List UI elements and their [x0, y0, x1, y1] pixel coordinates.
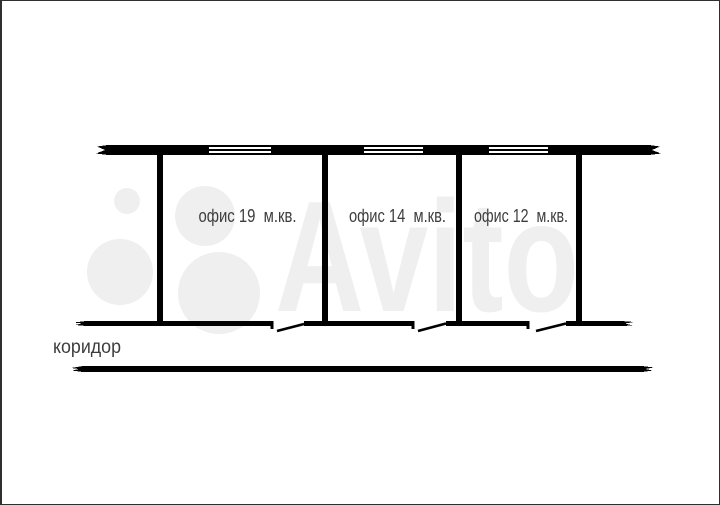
bottom-wall-segment-3: [446, 321, 529, 326]
windows: [209, 145, 548, 155]
wall-break-mark-corridor-left: [71, 366, 83, 372]
bottom-wall-segment-1: [86, 321, 273, 326]
watermark-text: Avito: [275, 169, 579, 345]
partition-wall-1: [157, 152, 163, 324]
wall-break-mark-bottom-right: [621, 321, 634, 326]
partition-wall-4: [576, 152, 582, 324]
corridor-wall: [71, 366, 654, 372]
bottom-wall-segment-4: [566, 321, 621, 326]
floor-plan-svg: Avito: [2, 1, 720, 504]
top-wall-segment-4: [548, 145, 649, 155]
room-2-label: офис 14 м.кв.: [349, 206, 446, 226]
room-1-label: офис 19 м.кв.: [199, 206, 297, 226]
watermark-logo-circle-small: [114, 188, 140, 214]
window-2-icon: [364, 145, 423, 155]
window-1-icon: [209, 145, 271, 155]
top-wall-segment-2: [271, 145, 364, 155]
bottom-wall-segment-2: [304, 321, 414, 326]
wall-break-mark-corridor-right: [642, 366, 654, 372]
corridor-label: коридор: [53, 337, 121, 358]
floor-plan-image: Avito: [0, 0, 720, 505]
wall-break-mark-top-left: [96, 145, 108, 155]
door-2-jamb: [412, 321, 415, 329]
window-3-icon: [489, 145, 548, 155]
watermark-logo-circle-large: [87, 239, 153, 305]
room-3-label: офис 12 м.кв.: [474, 206, 568, 226]
wall-break-mark-bottom-left: [74, 321, 86, 326]
partition-wall-2: [322, 152, 328, 324]
wall-break-mark-top-right: [649, 145, 661, 155]
door-3-jamb: [527, 321, 530, 329]
partition-wall-3: [456, 152, 462, 324]
door-1-jamb: [271, 321, 274, 329]
corridor-wall-segment: [83, 366, 642, 372]
